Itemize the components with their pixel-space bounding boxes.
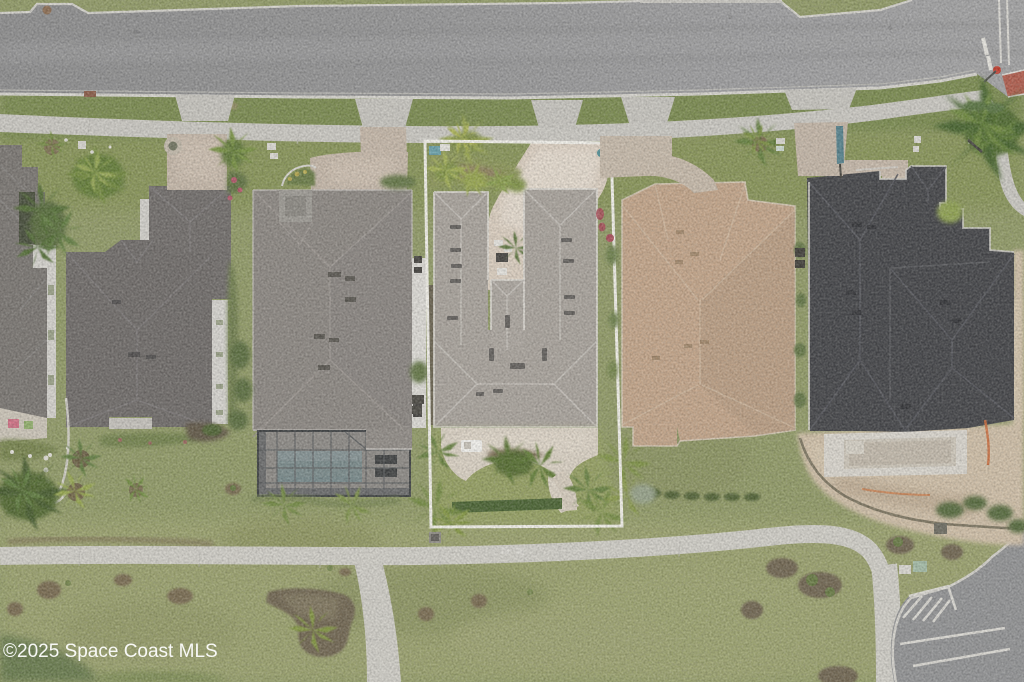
svg-text:©2025 Space Coast MLS: ©2025 Space Coast MLS	[3, 641, 218, 662]
